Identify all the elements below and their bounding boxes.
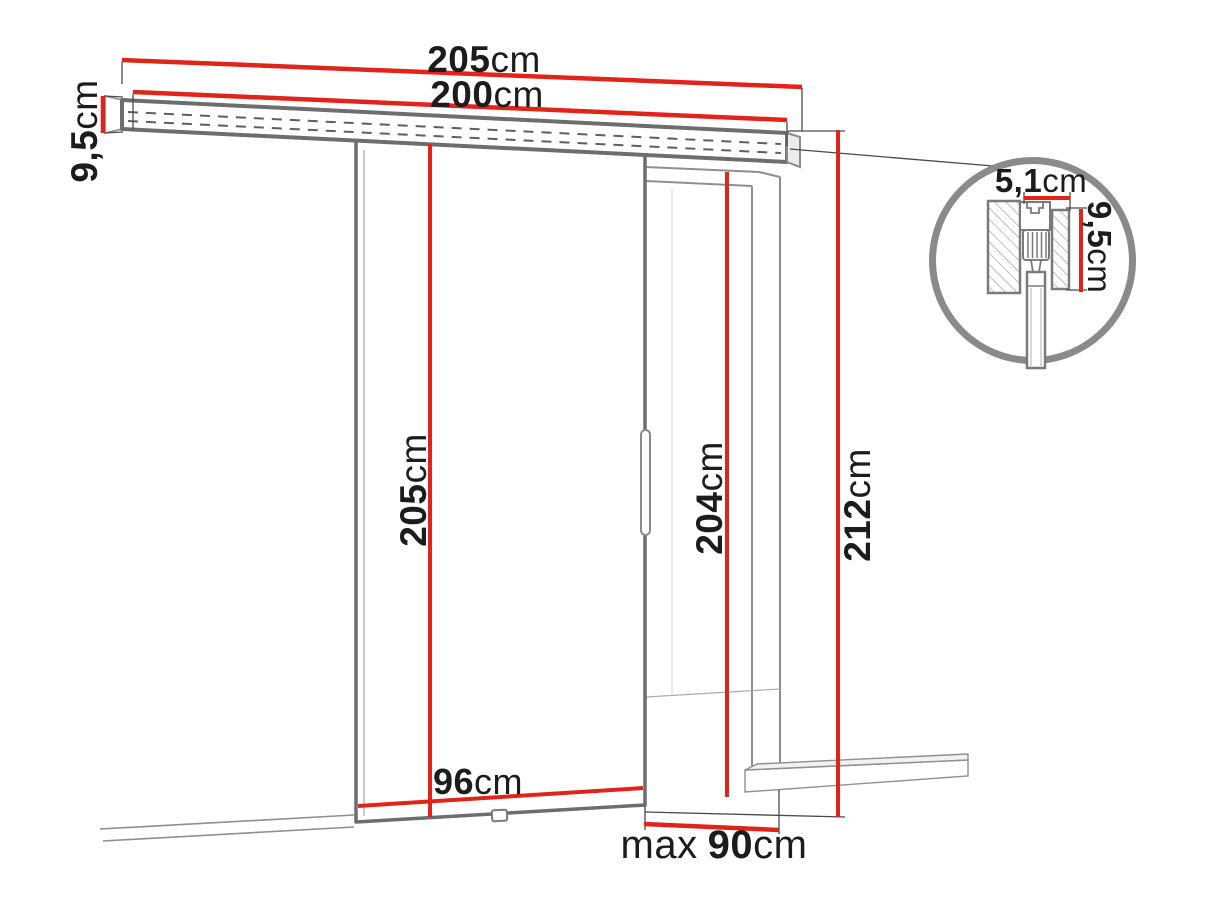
dim-label-track-height: 9,5cm — [64, 79, 105, 182]
dim-label-opening-height: 204cm — [689, 441, 730, 555]
door-handle — [641, 430, 650, 535]
tick-floor-level — [645, 812, 845, 817]
wall-section-right — [1052, 210, 1069, 289]
roller-wheel — [1023, 230, 1049, 260]
hanger-bolt — [1031, 260, 1041, 272]
skirting-board — [745, 754, 968, 792]
detail-pointer-line — [790, 149, 993, 166]
floor-guide — [492, 810, 508, 822]
dim-label-track-length: 200cm — [430, 74, 544, 115]
dim-label-max-clear-width: max90cm — [621, 823, 808, 867]
frame-corner-edge — [759, 172, 780, 177]
dim-label-detail-height: 9,5cm — [1081, 201, 1118, 293]
dim-label-door-width: 96cm — [433, 761, 523, 802]
opening-floor-line — [646, 689, 780, 697]
detail-circle: 5,1cm 9,5cm — [933, 161, 1133, 369]
frame-lintel-top-edge — [646, 167, 759, 172]
dim-label-detail-width: 5,1cm — [995, 162, 1087, 199]
technical-drawing-canvas: 5,1cm 9,5cm 205cm 200cm 9,5cm 205cm 96cm… — [0, 0, 1214, 910]
dim-label-total-height: 212cm — [837, 448, 878, 562]
track-end-cap-left — [105, 96, 122, 133]
wall-section-left — [988, 201, 1020, 293]
track-profile-section — [1020, 202, 1050, 230]
dim-label-door-height: 205cm — [393, 433, 434, 547]
floor-line-left — [100, 815, 354, 841]
frame-lintel-bottom-edge — [646, 181, 752, 186]
